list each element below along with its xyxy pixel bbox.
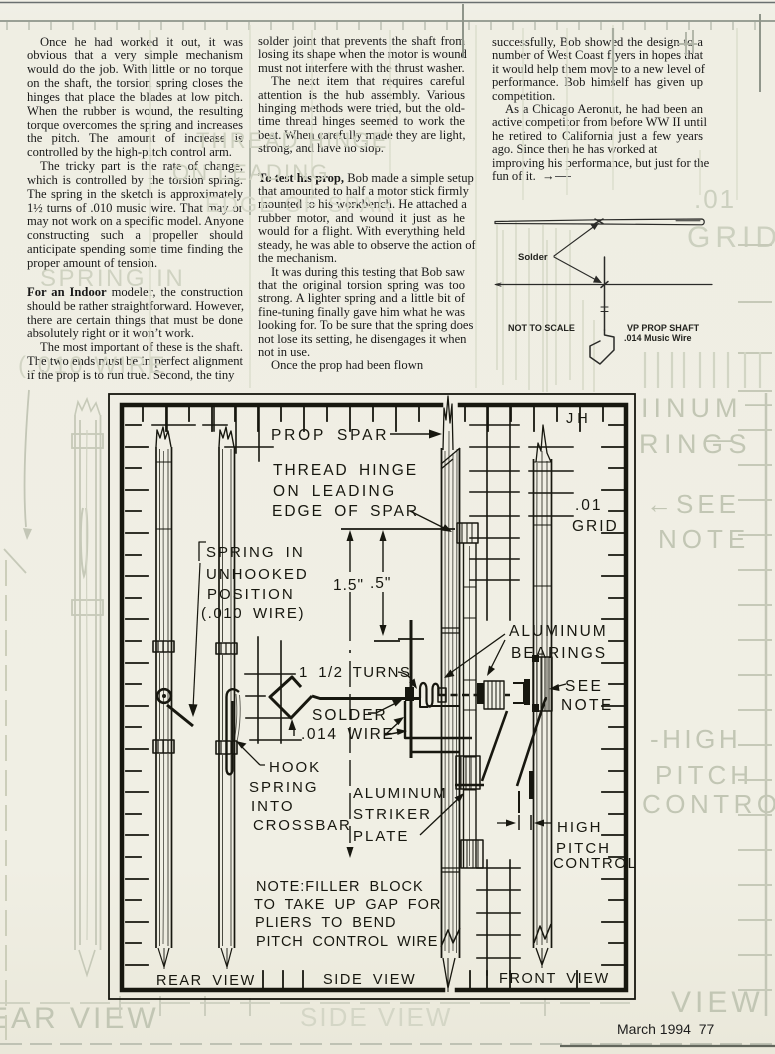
svg-text:JH: JH — [566, 411, 592, 427]
svg-text:NOTE: NOTE — [561, 697, 614, 714]
svg-text:CONTROL: CONTROL — [553, 855, 638, 872]
svg-text:SOLDER: SOLDER — [312, 707, 388, 724]
svg-text:.5": .5" — [370, 575, 391, 592]
svg-text:PROP SPAR: PROP SPAR — [271, 427, 389, 444]
svg-text:(.010 WIRE: (.010 WIRE — [18, 352, 167, 379]
svg-text:SPRING IN: SPRING IN — [40, 265, 185, 292]
svg-text:ALUMINUM: ALUMINUM — [509, 623, 608, 640]
svg-text:STRIKER: STRIKER — [353, 806, 432, 823]
svg-text:CROSSBAR: CROSSBAR — [253, 817, 352, 834]
svg-text:THREAD HINGE: THREAD HINGE — [196, 128, 389, 153]
svg-text:NOT TO SCALE: NOT TO SCALE — [508, 323, 575, 333]
svg-text:←SEE: ←SEE — [646, 489, 740, 519]
svg-text:EDGE OF SPAR: EDGE OF SPAR — [205, 192, 395, 217]
svg-text:THREAD HINGE: THREAD HINGE — [273, 462, 418, 479]
svg-text:SPRING: SPRING — [249, 779, 319, 796]
svg-text:INTO: INTO — [251, 798, 295, 815]
svg-text:IINUM: IINUM — [641, 393, 743, 423]
svg-text:PITCH: PITCH — [655, 760, 753, 790]
svg-text:Solder: Solder — [518, 252, 548, 263]
svg-text:1 1/2 TURNS: 1 1/2 TURNS — [299, 664, 411, 681]
svg-text:UNHOOKED: UNHOOKED — [206, 566, 309, 583]
svg-text:VP PROP SHAFT: VP PROP SHAFT — [627, 323, 700, 333]
svg-text:(.010 WIRE): (.010 WIRE) — [201, 605, 305, 622]
svg-text:.01: .01 — [575, 497, 603, 514]
svg-text:NOTE:FILLER BLOCK: NOTE:FILLER BLOCK — [256, 879, 424, 895]
svg-text:RINGS: RINGS — [639, 429, 752, 459]
svg-text:PLIERS TO BEND: PLIERS TO BEND — [255, 915, 397, 931]
svg-text:HIGH: HIGH — [557, 819, 603, 836]
svg-text:.014 Music Wire: .014 Music Wire — [624, 333, 691, 343]
svg-text:HOOK: HOOK — [269, 759, 321, 776]
svg-text:ON LEADING: ON LEADING — [172, 160, 330, 185]
svg-text:EDGE OF SPAR: EDGE OF SPAR — [272, 503, 419, 520]
svg-text:FRONT VIEW: FRONT VIEW — [499, 971, 610, 987]
svg-text:SPRING IN: SPRING IN — [206, 544, 305, 561]
svg-text:ON LEADING: ON LEADING — [273, 483, 397, 500]
svg-text:-HIGH: -HIGH — [650, 724, 741, 754]
svg-text:NOTE: NOTE — [658, 524, 750, 554]
svg-text:PITCH CONTROL WIRE: PITCH CONTROL WIRE — [256, 934, 438, 950]
svg-text:.014 WIRE: .014 WIRE — [301, 726, 394, 743]
svg-text:SEE: SEE — [565, 678, 603, 695]
svg-text:TO TAKE UP GAP FOR: TO TAKE UP GAP FOR — [254, 897, 441, 913]
svg-text:ALUMINUM: ALUMINUM — [353, 785, 447, 802]
svg-text:—: — — [745, 388, 772, 418]
svg-text:POSITION: POSITION — [207, 586, 295, 603]
svg-text:1.5": 1.5" — [333, 577, 364, 594]
svg-text:—: — — [706, 424, 733, 454]
svg-text:PLATE: PLATE — [353, 828, 409, 845]
svg-text:GRID: GRID — [572, 518, 619, 535]
svg-text:REAR VIEW: REAR VIEW — [156, 973, 256, 989]
svg-text:BEARINGS: BEARINGS — [511, 645, 607, 662]
svg-text:SIDE VIEW: SIDE VIEW — [323, 972, 416, 988]
